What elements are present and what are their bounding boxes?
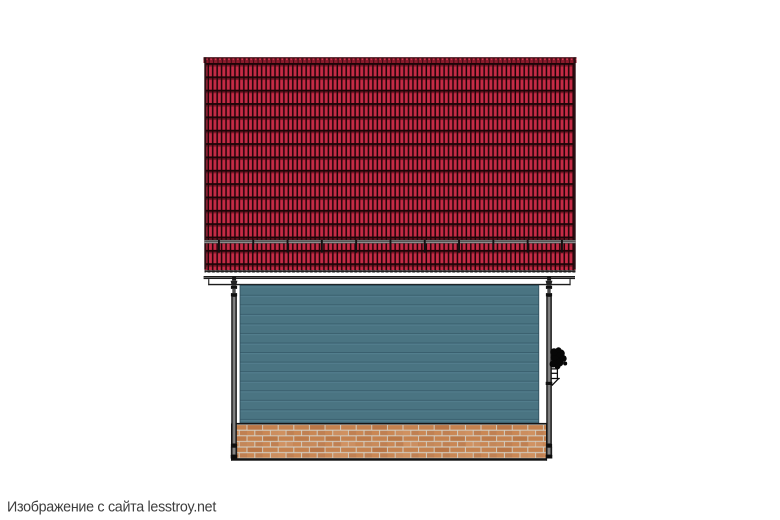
svg-text:Изображение с сайта lesstroy.n: Изображение с сайта lesstroy.net	[7, 500, 216, 516]
